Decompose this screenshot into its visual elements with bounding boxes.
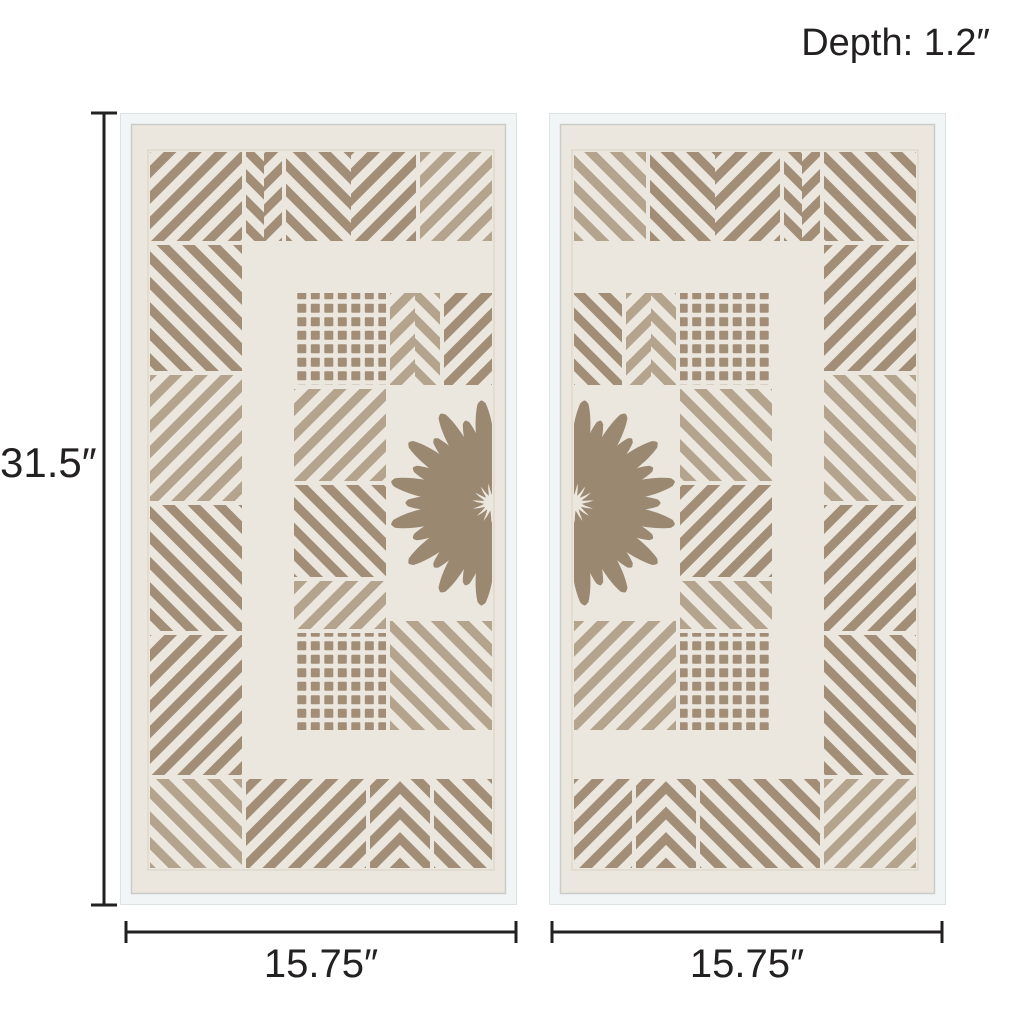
width-right-strokes (552, 921, 942, 943)
art-panel-left (121, 114, 596, 905)
width-label-right: 15.75″ (550, 944, 944, 984)
art-panel-right (471, 114, 946, 905)
height-dimension-line (89, 111, 119, 907)
width-left-strokes (126, 921, 516, 943)
product-dimension-image: Depth: 1.2″ 31.5″ (0, 0, 1024, 1024)
height-dimension-strokes (91, 113, 117, 905)
width-label-left: 15.75″ (124, 944, 518, 984)
wall-art-panels (120, 113, 946, 905)
depth-label: Depth: 1.2″ (801, 24, 990, 62)
height-label: 31.5″ (0, 442, 92, 484)
